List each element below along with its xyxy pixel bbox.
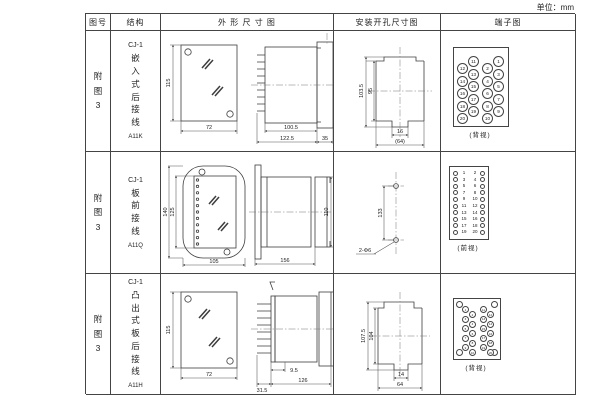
terminal-number-20: 20 [471, 230, 479, 235]
row2-install-svg: 133 2-Φ6 [334, 152, 441, 274]
terminal-1: 1 [462, 306, 469, 313]
terminal-20: 20 [457, 113, 468, 124]
terminal-number-2: 2 [471, 171, 479, 176]
terminal-8: 8 [482, 101, 493, 112]
terminal-hole [456, 349, 463, 356]
terminal-hole [453, 190, 458, 195]
terminal-hole [453, 210, 458, 215]
terminal-hole [480, 171, 485, 176]
terminal-hole [480, 197, 485, 202]
hatch-mark [209, 337, 220, 347]
terminal-number-9: 9 [460, 197, 468, 202]
dim-105: 105 [209, 259, 218, 265]
terminal-hole [480, 184, 485, 189]
dim-9-5: 9.5 [290, 368, 298, 374]
terminal-18: 18 [457, 101, 468, 112]
terminal-hole [480, 230, 485, 235]
row3-install-svg: 107.5 104 14 64 [334, 274, 441, 395]
row2-fig-label: 附图3 [92, 191, 105, 234]
dim-72: 72 [206, 372, 212, 378]
row1-outline-svg: 115 72 100.5 122.5 35 [161, 31, 334, 152]
terminal-caption: (前视) [449, 242, 487, 252]
row3-structure: CJ-1 凸出式板后接线 A11H [111, 274, 161, 395]
dim-122-5: 122.5 [280, 136, 294, 142]
dim-100-5: 100.5 [284, 125, 298, 131]
row2-outline-svg: 140 125 105 156 110 [161, 152, 334, 274]
terminal-4: 4 [469, 321, 476, 328]
terminal-3: 3 [462, 316, 469, 323]
terminal-9: 9 [462, 344, 469, 351]
terminal-15: 15 [480, 325, 487, 332]
terminal-number-16: 16 [471, 217, 479, 222]
hatch-mark [212, 86, 223, 96]
terminal-6: 6 [482, 88, 493, 99]
terminal-13: 13 [480, 316, 487, 323]
terminal-14: 14 [457, 76, 468, 87]
terminal-19: 19 [468, 106, 479, 117]
dim-110: 110 [324, 208, 330, 217]
dim-133: 133 [378, 208, 384, 217]
terminal-number-4: 4 [471, 178, 479, 183]
terminal-hole [480, 204, 485, 209]
row1-structure: CJ-1 嵌入式后接线 A11K [111, 31, 161, 152]
dim-115: 115 [166, 326, 172, 335]
header-structure: 结构 [111, 14, 161, 31]
row3-fig-no: 附图3 [86, 274, 111, 395]
row3-outline-svg: 115 72 9.5 31.5 126 [161, 274, 334, 395]
terminal-caption: (背视) [453, 362, 499, 372]
dim-126: 126 [298, 378, 307, 384]
label-2-phi6: 2-Φ6 [359, 248, 371, 254]
hatch-mark [218, 222, 228, 231]
row3-structure-name: 凸出式板后接线 [129, 289, 142, 378]
row1-structure-name: 嵌入式后接线 [129, 52, 142, 129]
terminal-19: 19 [480, 344, 487, 351]
row2-outline-drawing: 140 125 105 156 110 [161, 152, 334, 274]
row1-install-svg: 103.5 95 16 (64) [334, 31, 441, 152]
terminal-caption: (背视) [453, 129, 507, 139]
terminal-4: 4 [482, 76, 493, 87]
terminal-hole [453, 184, 458, 189]
dimension-table: 图号 结构 外 形 尺 寸 图 安装开孔尺寸图 端子图 附图3 CJ-1 嵌入式… [85, 13, 575, 394]
terminal-2: 2 [469, 311, 476, 318]
terminal-number-12: 12 [471, 204, 479, 209]
row1-terminal-cell: 1214161820111315171924681013579 (背视) [441, 31, 576, 152]
hatch-mark [209, 196, 219, 205]
dim-140: 140 [163, 207, 169, 216]
row2-code: A11Q [128, 243, 143, 249]
terminal-hole [480, 223, 485, 228]
terminal-number-14: 14 [471, 211, 479, 216]
header-terminal: 端子图 [441, 14, 576, 31]
row1-install-drawing: 103.5 95 16 (64) [334, 31, 441, 152]
terminal-17: 17 [468, 94, 479, 105]
row1-code: A11K [128, 134, 142, 140]
terminal-9: 9 [493, 106, 504, 117]
terminal-16: 16 [457, 88, 468, 99]
terminal-number-19: 19 [460, 230, 468, 235]
terminal-hole [453, 230, 458, 235]
terminal-number-1: 1 [460, 171, 468, 176]
terminal-18: 18 [487, 340, 494, 347]
terminal-hole [480, 190, 485, 195]
dim-107-5: 107.5 [361, 329, 367, 343]
terminal-number-5: 5 [460, 184, 468, 189]
row3-code: A11H [128, 383, 143, 389]
row2-install-drawing: 133 2-Φ6 [334, 152, 441, 274]
terminal-2: 2 [482, 63, 493, 74]
terminal-13: 13 [468, 69, 479, 80]
dim-35: 35 [322, 136, 328, 142]
terminal-5: 5 [493, 81, 504, 92]
terminal-16: 16 [487, 330, 494, 337]
terminal-12: 12 [487, 311, 494, 318]
terminal-7: 7 [462, 335, 469, 342]
row1-outline-drawing: 115 72 100.5 122.5 35 [161, 31, 334, 152]
terminal-number-17: 17 [460, 224, 468, 229]
terminal-number-7: 7 [460, 191, 468, 196]
dim-64: 64 [397, 382, 403, 388]
terminal-number-8: 8 [471, 191, 479, 196]
dim-103-5: 103.5 [359, 84, 365, 98]
terminal-hole [480, 217, 485, 222]
hatch-mark [202, 59, 213, 69]
terminal-number-3: 3 [460, 178, 468, 183]
terminal-10: 10 [469, 349, 476, 356]
terminal-5: 5 [462, 325, 469, 332]
terminal-hole [453, 177, 458, 182]
terminal-number-10: 10 [471, 197, 479, 202]
dim-115: 115 [166, 79, 172, 88]
terminal-hole [491, 301, 498, 308]
header-outline: 外 形 尺 寸 图 [161, 14, 334, 31]
terminal-number-13: 13 [460, 211, 468, 216]
unit-label: 单位：mm [537, 2, 574, 13]
terminal-1: 1 [493, 56, 504, 67]
dim-16: 16 [397, 129, 403, 135]
terminal-hole [453, 197, 458, 202]
terminal-14: 14 [487, 321, 494, 328]
row1-fig-no: 附图3 [86, 31, 111, 152]
terminal-number-18: 18 [471, 224, 479, 229]
terminal-hole [480, 177, 485, 182]
row2-fig-no: 附图3 [86, 152, 111, 274]
dim-104: 104 [369, 331, 375, 340]
terminal-hole [453, 171, 458, 176]
row2-structure-name: 板前接线 [129, 187, 142, 238]
header-fig-no: 图号 [86, 14, 111, 31]
dim-95: 95 [368, 88, 374, 94]
terminal-number-15: 15 [460, 217, 468, 222]
terminal-number-6: 6 [471, 184, 479, 189]
row2-model: CJ-1 [128, 177, 143, 184]
row3-model: CJ-1 [128, 279, 143, 286]
terminal-diagram-front-a11q: 1234567891011121314151617181920 [449, 166, 489, 240]
terminal-hole [453, 223, 458, 228]
terminal-diagram-rear-a11h: 1357924681011131517191214161820 [453, 298, 501, 360]
terminal-3: 3 [493, 69, 504, 80]
dim-156: 156 [280, 258, 289, 264]
terminal-hole [453, 204, 458, 209]
row1-fig-label: 附图3 [92, 69, 105, 112]
dim-64: (64) [395, 139, 405, 145]
terminal-17: 17 [480, 335, 487, 342]
terminal-diagram-rear-a11k: 1214161820111315171924681013579 [453, 47, 509, 127]
manual-page: 单位：mm 图号 结构 外 形 尺 寸 图 安装开孔尺寸图 端子图 附图3 CJ… [0, 0, 600, 400]
terminal-12: 12 [457, 63, 468, 74]
dim-31-5: 31.5 [257, 388, 268, 394]
dim-14: 14 [398, 372, 404, 378]
terminal-hole [480, 210, 485, 215]
terminal-10: 10 [482, 113, 493, 124]
terminal-number-11: 11 [460, 204, 468, 209]
terminal-7: 7 [493, 94, 504, 105]
row3-fig-label: 附图3 [92, 312, 105, 355]
terminal-11: 11 [480, 306, 487, 313]
row2-terminal-cell: 1234567891011121314151617181920 (前视) [441, 152, 576, 274]
terminal-11: 11 [468, 56, 479, 67]
terminal-15: 15 [468, 81, 479, 92]
row1-model: CJ-1 [128, 42, 143, 49]
dim-125: 125 [170, 207, 176, 216]
hatch-mark [199, 309, 210, 319]
row3-install-drawing: 107.5 104 14 64 [334, 274, 441, 395]
terminal-hole [453, 217, 458, 222]
row3-outline-drawing: 115 72 9.5 31.5 126 [161, 274, 334, 395]
row2-structure: CJ-1 板前接线 A11Q [111, 152, 161, 274]
row3-terminal-cell: 1357924681011131517191214161820 (背视) [441, 274, 576, 395]
header-install: 安装开孔尺寸图 [334, 14, 441, 31]
dim-72: 72 [206, 125, 212, 131]
terminal-6: 6 [469, 330, 476, 337]
terminal-8: 8 [469, 340, 476, 347]
